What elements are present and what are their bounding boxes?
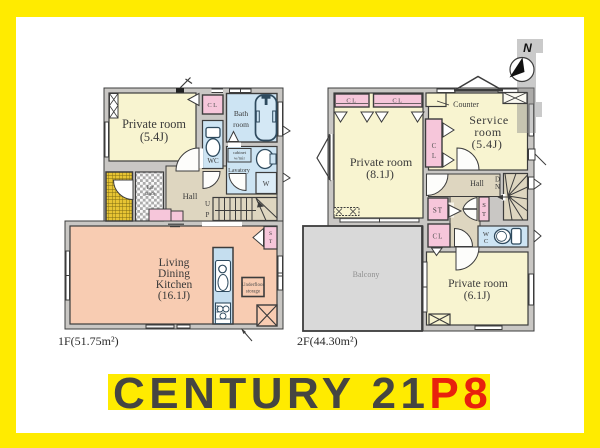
svg-text:CL: CL: [346, 98, 357, 105]
svg-text:(16.1J): (16.1J): [158, 290, 190, 302]
svg-text:rance: rance: [145, 192, 157, 197]
svg-text:Lavatory: Lavatory: [228, 168, 250, 174]
svg-text:(5.4J): (5.4J): [472, 137, 503, 151]
svg-text:W: W: [263, 180, 270, 188]
svg-text:(6.1J): (6.1J): [464, 290, 491, 302]
svg-text:CL: CL: [392, 98, 403, 105]
svg-text:cabinet: cabinet: [233, 150, 247, 155]
svg-text:N: N: [495, 183, 500, 191]
svg-text:room: room: [233, 120, 249, 129]
svg-text:S: S: [482, 202, 486, 209]
svg-text:(5.4J): (5.4J): [140, 130, 168, 144]
svg-text:T: T: [482, 211, 486, 218]
svg-text:Private room: Private room: [448, 278, 508, 290]
svg-text:WC: WC: [207, 157, 219, 165]
svg-text:Bath: Bath: [234, 109, 248, 118]
svg-text:Private room: Private room: [122, 117, 186, 131]
svg-text:w/mir: w/mir: [234, 156, 245, 161]
svg-text:Hall: Hall: [470, 179, 485, 188]
svg-text:2F(44.30m²): 2F(44.30m²): [297, 334, 358, 348]
svg-text:Balcony: Balcony: [353, 270, 380, 279]
svg-text:1F(51.75m²): 1F(51.75m²): [58, 334, 119, 348]
svg-text:CL: CL: [433, 233, 444, 241]
svg-text:Underfloor: Underfloor: [242, 283, 265, 288]
svg-text:CENTURY 21P8: CENTURY 21P8: [113, 369, 492, 418]
svg-text:Counter: Counter: [453, 100, 479, 109]
svg-text:N: N: [523, 41, 532, 55]
svg-text:Ent: Ent: [147, 186, 155, 191]
svg-text:S: S: [269, 231, 272, 237]
svg-text:CL: CL: [207, 102, 218, 109]
svg-text:ST: ST: [433, 207, 443, 215]
svg-text:L: L: [432, 152, 436, 160]
svg-text:Hall: Hall: [183, 191, 198, 201]
svg-text:storage: storage: [246, 290, 261, 295]
svg-text:C: C: [484, 238, 488, 245]
svg-text:W: W: [483, 231, 490, 238]
svg-text:(8.1J): (8.1J): [366, 167, 394, 181]
svg-text:P: P: [206, 211, 210, 219]
svg-text:C: C: [432, 142, 437, 150]
svg-text:U: U: [205, 200, 210, 208]
